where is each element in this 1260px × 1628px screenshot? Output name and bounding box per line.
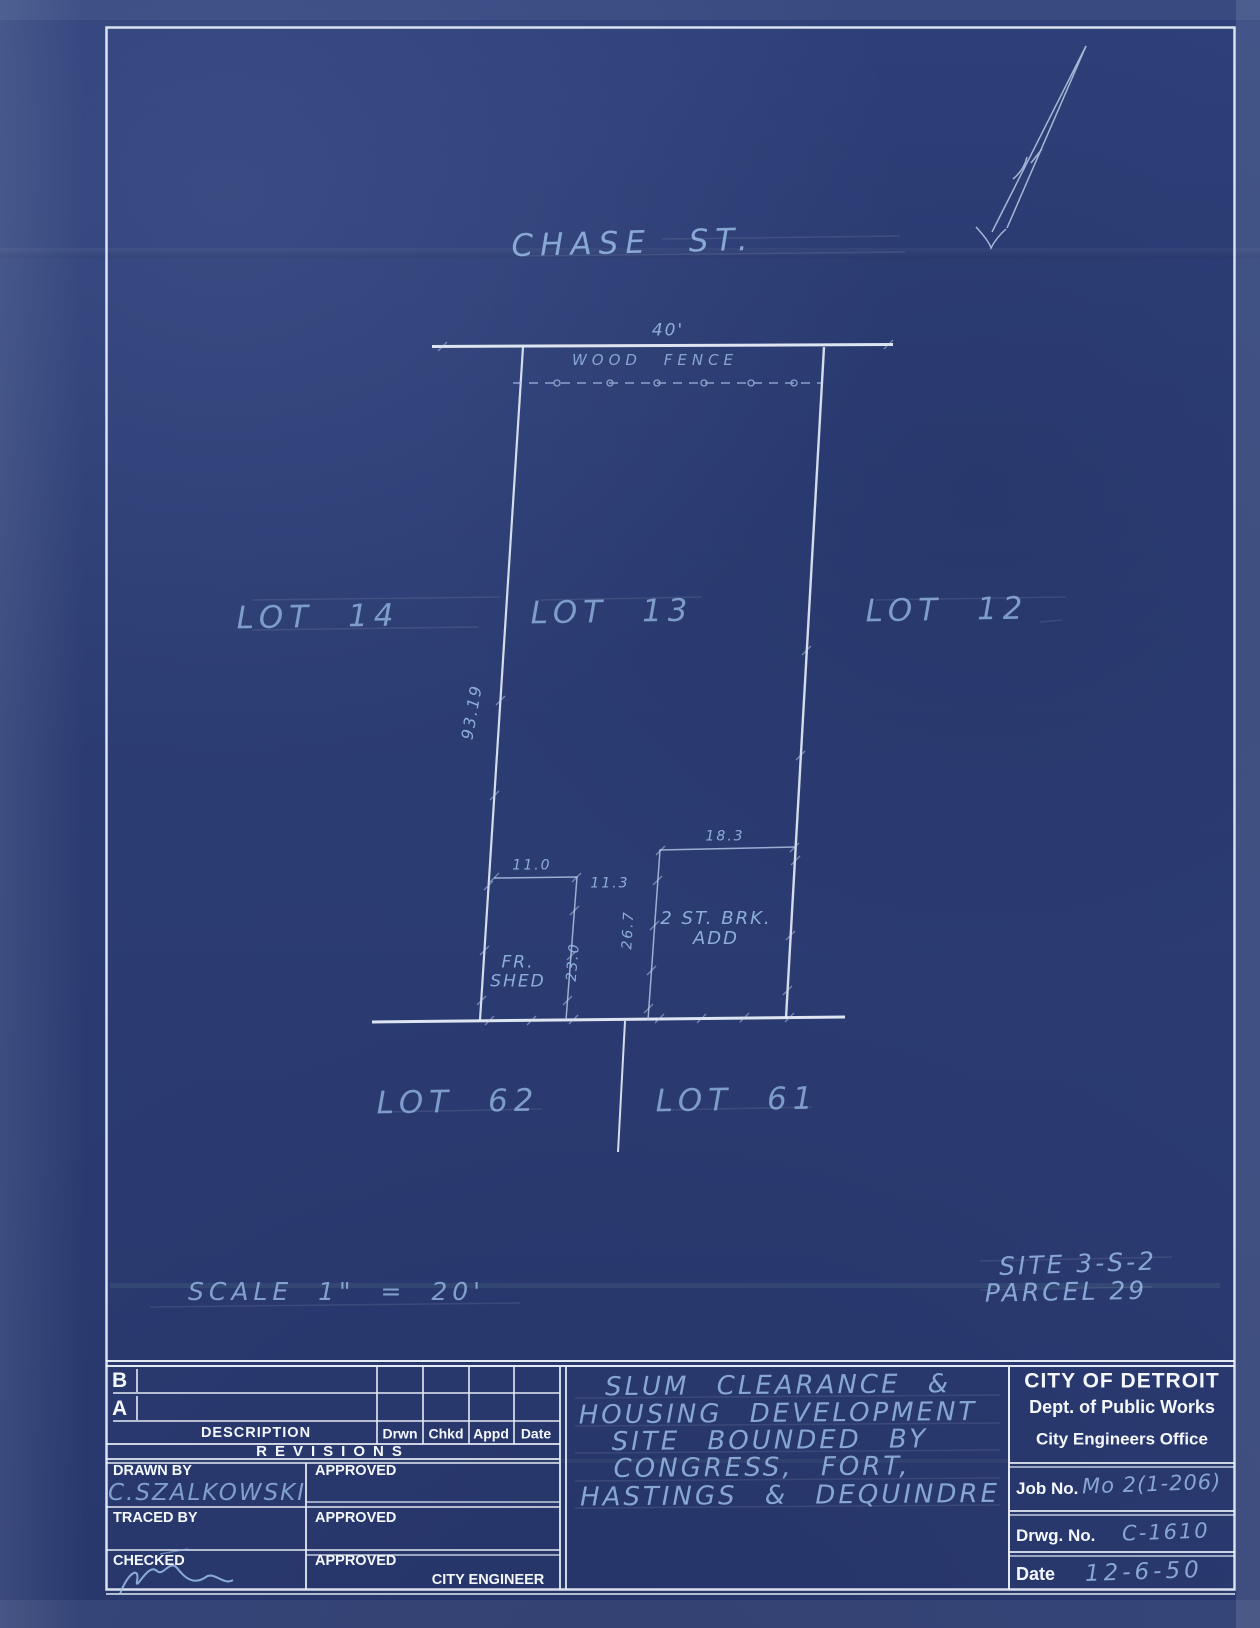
- north-arrow-icon: [976, 46, 1086, 248]
- city-engineer-label: CITY ENGINEER: [432, 1573, 545, 1589]
- date-value: 12-6-50: [1085, 1558, 1204, 1587]
- agency-name: CITY OF DETROIT: [1024, 1369, 1219, 1392]
- checked-label: CHECKED: [113, 1554, 185, 1570]
- approved-label-3: APPROVED: [315, 1554, 396, 1570]
- sheet-border-frame: [107, 28, 1235, 1590]
- lot-61-label: LOT 61: [655, 1082, 819, 1119]
- frame-shed-outline: [494, 877, 577, 1020]
- street-line: [432, 345, 893, 347]
- revisions-col-drwn: Drwn: [383, 1426, 418, 1441]
- project-title-line-4: CONGRESS, FORT,: [613, 1452, 910, 1483]
- revision-row-b-label: B: [112, 1369, 127, 1392]
- job-no-label: Job No.: [1016, 1480, 1078, 1499]
- drawn-by-label: DRAWN BY: [113, 1464, 192, 1480]
- ghost-guide-lines: [150, 236, 1172, 1508]
- approved-label-2: APPROVED: [315, 1511, 396, 1527]
- blueprint-sheet: CHASE ST. 40' WOOD FENCE LOT 14 LOT 13 L…: [0, 0, 1260, 1628]
- brick-addition-label-line1: 2 ST. BRK.: [660, 909, 771, 929]
- date-label: Date: [1016, 1565, 1055, 1585]
- revisions-col-chkd: Chkd: [429, 1426, 464, 1441]
- drwg-no-label: Drwg. No.: [1016, 1527, 1095, 1546]
- lot-13-label: LOT 13: [530, 594, 694, 631]
- revisions-caption: REVISIONS: [256, 1444, 410, 1461]
- east-lot-line: [786, 347, 824, 1018]
- wood-fence-line: [513, 380, 821, 386]
- lot-14-label: LOT 14: [236, 599, 400, 636]
- parcel-ref-label: PARCEL 29: [985, 1277, 1148, 1307]
- approved-label-1: APPROVED: [315, 1464, 396, 1480]
- revisions-col-description: DESCRIPTION: [201, 1426, 311, 1442]
- gap-dimension: 11.3: [590, 876, 629, 891]
- addition-depth-dimension: 26.7: [620, 910, 637, 950]
- frame-shed-label: FR. SHED: [490, 953, 545, 990]
- revisions-col-appd: Appd: [473, 1426, 509, 1441]
- revision-row-a-label: A: [112, 1397, 127, 1420]
- traced-by-label: TRACED BY: [113, 1511, 198, 1527]
- agency-office: City Engineers Office: [1036, 1431, 1208, 1450]
- lot-62-label: LOT 62: [376, 1084, 540, 1121]
- wood-fence-label: WOOD FENCE: [572, 352, 738, 369]
- frame-shed-label-line1: FR.: [490, 953, 545, 972]
- drawn-by-value: C.SZALKOWSKI: [108, 1481, 306, 1506]
- scale-note: SCALE 1" = 20': [188, 1278, 485, 1306]
- west-lot-line: [480, 347, 523, 1020]
- project-title-line-5: HASTINGS & DEQUINDRE: [580, 1480, 1000, 1512]
- lot-12-label: LOT 12: [865, 592, 1029, 629]
- agency-department: Dept. of Public Works: [1029, 1398, 1215, 1418]
- job-no-value: Mo 2(1-206): [1082, 1471, 1222, 1499]
- addition-width-dimension: 18.3: [705, 829, 744, 844]
- shed-width-dimension: 11.0: [512, 858, 551, 873]
- rear-lots-divider-line: [618, 1021, 625, 1152]
- parcel-boundary-lines: [372, 345, 893, 1153]
- brick-addition-label: 2 ST. BRK. ADD: [660, 909, 771, 949]
- street-name-label: CHASE ST.: [511, 223, 755, 263]
- revisions-col-date: Date: [521, 1426, 551, 1441]
- brick-addition-label-line2: ADD: [660, 929, 771, 949]
- rear-lot-line: [372, 1017, 845, 1022]
- drwg-no-value: C-1610: [1122, 1519, 1210, 1545]
- frontage-dimension: 40': [652, 322, 684, 341]
- frame-shed-label-line2: SHED: [490, 972, 545, 991]
